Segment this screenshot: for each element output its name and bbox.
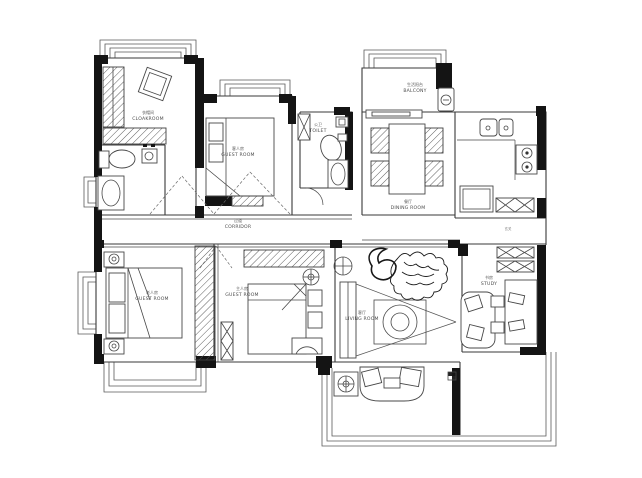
chair-icon [425,128,443,153]
desk-icon [505,280,537,344]
room-label-zh: 餐厅 [404,198,412,204]
sofa-icon [461,292,495,348]
chair-icon [491,296,504,307]
sofa-icon [360,367,424,401]
room-label-en: GUEST ROOM [221,152,254,158]
room-guest-left: 老人房 GUEST ROOM [104,246,215,360]
door-swing [306,188,323,205]
plant-art-icon [369,248,447,300]
washing-machine-icon [438,88,454,111]
room-label-en: STUDY [481,281,497,287]
chair-icon [491,322,504,333]
room-label-zh: 衣帽间 [142,109,154,115]
side-table-icon [292,338,322,354]
room-label-en: GUEST ROOM [225,292,258,298]
dining-table-icon [389,124,425,194]
pillow-icon [109,304,125,333]
sink-icon [499,119,513,136]
stove-icon [516,145,537,174]
wardrobe-icon [195,246,215,360]
room-label-zh: 过道 [234,217,242,223]
wardrobe-icon [244,250,324,267]
nightstand-icon [308,290,322,306]
monitor-icon [508,320,524,331]
floor-plan-svg: 衣帽间 CLOAKROOM 客人房 GUEST ROOM 公卫 TOI [0,0,642,478]
room-dining: 餐厅 DINING ROOM [371,124,443,211]
chair-icon [371,128,389,153]
cabinet-icon [497,247,534,258]
coffee-table-icon [374,300,426,344]
chair-icon [371,161,389,186]
room-label-zh: 生活阳台 [407,81,423,87]
room-label-zh: 客人房 [232,145,244,151]
cabinet-icon [496,198,534,212]
toilet-icon [338,134,347,141]
walls [96,58,546,435]
room-balcony-bottom [334,367,456,401]
room-label-en: CORRIDOR [225,224,252,230]
sink-icon [480,119,497,136]
room-label-en: LIVING ROOM [345,316,378,322]
nightstand-icon [308,312,322,328]
fire-table-icon [334,372,358,396]
window-bays [78,40,556,446]
room-guest-mid: 主人房 GUEST ROOM [221,250,324,360]
room-toilet: 公卫 TOILET [298,114,348,205]
wardrobe-icon [103,128,166,144]
room-label-zh: 公卫 [314,122,322,127]
cabinet-icon [497,261,534,272]
room-cloakroom: 衣帽间 CLOAKROOM [103,67,172,144]
pillow-icon [209,123,223,141]
toilet-icon [109,150,135,168]
room-living: 客厅 LIVING ROOM [334,248,456,358]
room-label-en: DINING ROOM [391,205,426,211]
closet-icon [232,196,263,206]
toilet-icon [99,151,109,168]
cabinet-icon [221,322,233,360]
chair-icon [138,67,171,100]
room-label-en: CLOAKROOM [132,116,163,122]
sink-icon [142,149,157,163]
room-label-zh: 客厅 [358,309,366,315]
room-label-zh: 老人房 [146,289,158,295]
pillow-icon [109,273,125,302]
room-label-en: BALCONY [403,88,426,94]
fridge-icon [460,186,493,212]
room-label-zh: 主人房 [236,285,248,291]
room-label-en: GUEST ROOM [135,296,168,302]
floor-plan-image: 衣帽间 CLOAKROOM 客人房 GUEST ROOM 公卫 TOI [0,0,642,478]
chair-icon [425,161,443,186]
room-bathroom-master [98,144,157,210]
niche-icon [336,117,348,127]
entry-label: 玄关 [505,226,512,231]
ceiling-fan-icon [303,269,319,285]
room-kitchen [457,119,537,212]
ceiling-fan-icon [334,257,352,275]
entry: 玄关 [505,226,512,231]
wardrobe-icon [103,67,124,127]
room-label-en: TOILET [308,128,326,134]
room-study: 书房 STUDY [461,247,537,348]
room-guest-top: 客人房 GUEST ROOM [206,118,274,206]
room-label-zh: 书房 [485,274,493,280]
